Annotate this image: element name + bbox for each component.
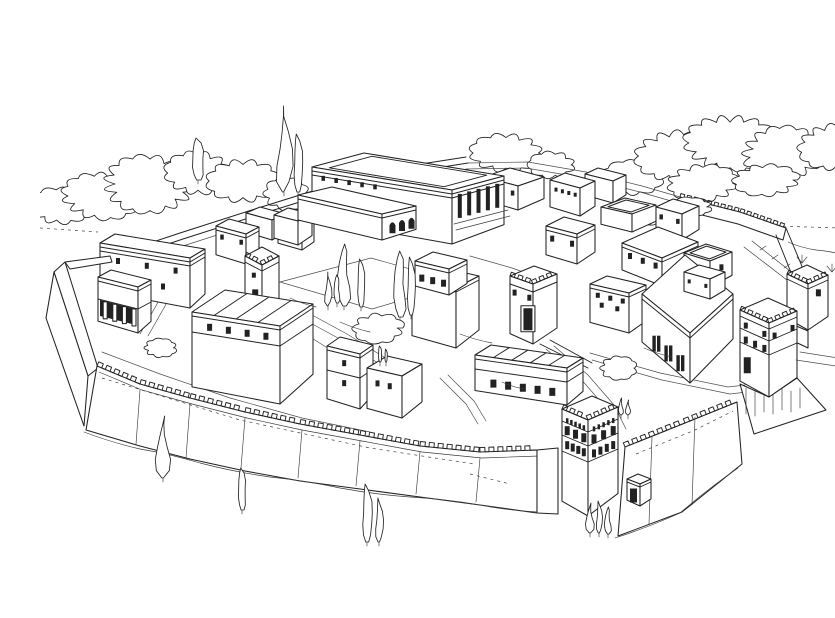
window — [688, 279, 691, 283]
window — [226, 327, 231, 334]
window — [511, 191, 515, 196]
porch-column — [132, 309, 136, 326]
window — [570, 241, 574, 247]
citadel-drawing — [40, 16, 835, 602]
window — [598, 424, 601, 429]
window — [252, 273, 256, 278]
window — [430, 277, 435, 284]
window — [593, 426, 596, 431]
window — [161, 284, 165, 290]
window — [360, 182, 364, 187]
window — [654, 263, 658, 269]
window — [582, 448, 586, 456]
window — [566, 418, 569, 423]
window — [342, 380, 346, 386]
window — [753, 341, 757, 348]
window — [561, 189, 564, 193]
window — [602, 422, 605, 427]
window — [601, 430, 606, 439]
large-beamed-house — [192, 290, 313, 404]
window — [490, 380, 496, 388]
illustration — [40, 16, 835, 602]
window — [607, 420, 610, 425]
window — [659, 214, 663, 219]
window — [263, 333, 268, 340]
portico-column-gap — [486, 186, 490, 210]
window — [565, 426, 570, 435]
window — [576, 446, 580, 454]
window — [388, 383, 392, 389]
tree — [600, 356, 637, 380]
window — [373, 184, 377, 189]
window — [744, 323, 748, 329]
window — [773, 333, 777, 339]
portico-column-gap — [467, 191, 471, 215]
window — [612, 418, 615, 423]
window — [570, 420, 573, 425]
window — [321, 176, 325, 181]
porch-column — [113, 304, 117, 321]
window — [571, 444, 575, 452]
porch-column — [103, 302, 107, 319]
window — [611, 426, 616, 435]
main-gate-tower — [562, 396, 618, 516]
window — [334, 178, 338, 183]
window — [676, 219, 680, 224]
house — [546, 217, 595, 264]
window — [816, 289, 821, 296]
window — [592, 449, 596, 457]
inner-gate-tower — [510, 266, 557, 344]
portico-column-gap — [458, 194, 462, 218]
window — [574, 422, 577, 427]
door — [744, 357, 751, 373]
window — [578, 423, 581, 428]
house — [327, 337, 373, 409]
arched-doorway — [389, 222, 395, 233]
window — [583, 425, 586, 430]
window — [605, 444, 609, 452]
window — [641, 258, 645, 264]
window — [573, 430, 578, 439]
window — [239, 240, 243, 245]
window — [744, 337, 748, 344]
cypress-tree — [385, 349, 387, 362]
door — [523, 308, 532, 330]
wall-segment — [537, 448, 558, 514]
house — [367, 356, 422, 418]
window — [628, 253, 632, 259]
window — [550, 236, 554, 242]
window — [245, 330, 250, 337]
window — [592, 434, 597, 443]
window — [527, 295, 531, 301]
window — [574, 193, 577, 197]
window — [762, 331, 766, 337]
window — [598, 447, 602, 455]
window — [567, 191, 570, 195]
window — [207, 324, 212, 331]
postern-door-house — [627, 474, 651, 506]
cypress-tree — [192, 138, 203, 180]
corner-tower — [740, 298, 797, 397]
window — [145, 263, 149, 269]
porch-column — [122, 307, 126, 324]
window — [565, 441, 569, 449]
window — [520, 384, 526, 392]
window — [342, 360, 346, 366]
porch-house — [98, 270, 151, 333]
window — [376, 380, 380, 386]
window — [549, 388, 555, 396]
arched-doorway — [399, 220, 405, 231]
window — [608, 296, 612, 301]
window — [116, 258, 120, 264]
window — [581, 433, 586, 442]
wall-left — [327, 346, 360, 409]
portico-column-gap — [477, 189, 481, 213]
window — [174, 268, 178, 274]
window — [600, 303, 604, 308]
window — [615, 306, 619, 311]
window — [347, 180, 351, 185]
window — [535, 386, 541, 394]
window — [611, 441, 615, 449]
arched-doorway — [409, 218, 415, 229]
house — [590, 276, 646, 333]
window — [621, 299, 625, 304]
cypress-tree — [379, 346, 382, 362]
window — [555, 188, 558, 192]
window — [791, 325, 795, 331]
portico-column-gap — [495, 184, 499, 208]
door — [630, 489, 637, 503]
window — [596, 293, 600, 298]
window — [513, 290, 517, 296]
window — [762, 345, 766, 352]
window — [704, 284, 707, 288]
window — [220, 235, 224, 240]
window — [719, 264, 723, 270]
cypress-tree — [238, 468, 245, 510]
upper-story — [415, 252, 467, 295]
window — [419, 275, 424, 282]
window — [441, 280, 446, 287]
